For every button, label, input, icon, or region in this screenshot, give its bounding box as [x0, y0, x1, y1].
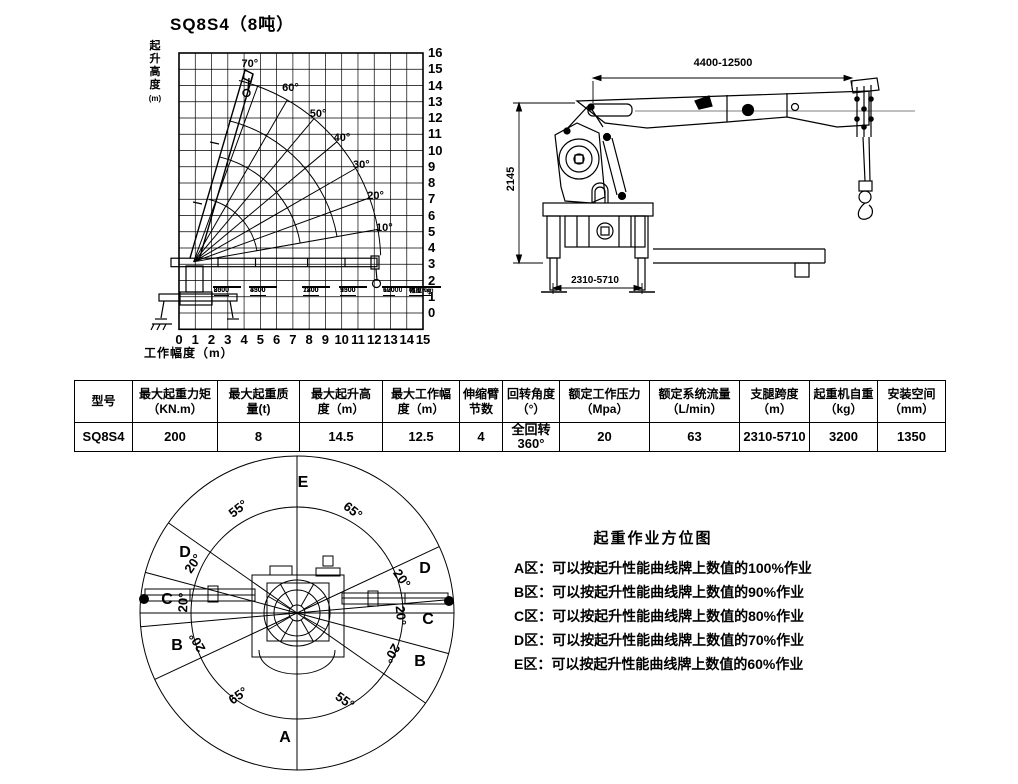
boom-angle-label: 60°	[276, 82, 304, 94]
zone-legend-item-e: E区：可以按起升性能曲线牌上数值的60%作业	[514, 654, 854, 674]
y-tick: 5	[428, 224, 435, 239]
spec-value-9: 2310-5710	[740, 423, 810, 452]
boom-angle-label: 40°	[328, 132, 356, 144]
load-chart-canvas	[150, 30, 465, 375]
y-tick: 4	[428, 240, 435, 255]
spec-col-header-5: 伸缩臂 节数	[460, 381, 503, 423]
spec-col-header-7: 额定工作压力 （Mpa）	[560, 381, 650, 423]
load-point-box: 13009500	[339, 286, 367, 288]
spec-value-2: 8	[218, 423, 300, 452]
y-tick: 6	[428, 208, 435, 223]
spec-value-6: 全回转 360°	[503, 423, 560, 452]
x-tick: 15	[414, 332, 432, 347]
boom-angle-label: 20°	[362, 190, 390, 202]
load-height-chart: 起升高度 (m) 工作幅度（m） 01234567891011121314150…	[150, 30, 465, 375]
boom	[577, 91, 869, 128]
spec-col-header-4: 最大工作幅 度（m）	[383, 381, 460, 423]
load-point-box: 18007200	[302, 286, 330, 288]
spec-col-header-10: 起重机自重 （kg）	[810, 381, 878, 423]
spec-value-5: 4	[460, 423, 503, 452]
boom-angle-label: 50°	[304, 108, 332, 120]
zone-letter-B: B	[167, 637, 187, 655]
zone-letter-C: C	[418, 611, 438, 629]
y-tick: 11	[428, 126, 442, 141]
boom-angle-label: 70°	[236, 58, 264, 70]
spec-sheet: SQ8S4（8吨）	[0, 0, 1018, 784]
load-point-box: 33004500	[249, 286, 277, 288]
zone-letter-D: D	[415, 560, 435, 578]
y-tick: 0	[428, 305, 435, 320]
load-box-legend: 荷重Kg幅度mm	[408, 286, 441, 288]
y-tick: 13	[428, 94, 442, 109]
sector-angle-label: 20°	[175, 588, 191, 617]
y-axis-label-text: 起升高度	[150, 40, 161, 91]
boom-angle-rays	[194, 86, 378, 262]
spec-value-0: SQ8S4	[75, 423, 133, 452]
spec-col-header-1: 最大起重力矩 （KN.m）	[133, 381, 218, 423]
load-point-box: 80002500	[213, 286, 241, 288]
boom-angle-label: 10°	[370, 222, 398, 234]
spec-table: 型号最大起重力矩 （KN.m）最大起重质 量(t)最大起升高 度（m）最大工作幅…	[74, 380, 946, 452]
y-axis-label: 起升高度 (m)	[148, 40, 162, 105]
spec-col-header-8: 额定系统流量 （L/min）	[650, 381, 740, 423]
boom-head	[851, 78, 879, 137]
zone-letter-C: C	[157, 591, 177, 609]
radius-legend-label: 幅度mm	[409, 287, 434, 295]
y-tick: 16	[428, 45, 442, 60]
dim-boom-length: 4400-12500	[653, 57, 793, 69]
y-axis-unit: (m)	[148, 92, 162, 105]
zone-letter-A: A	[275, 729, 295, 747]
boom-angle-label: 30°	[347, 159, 375, 171]
y-tick: 15	[428, 61, 442, 76]
crane-side-view: 4400-12500 2145 2310-5710	[495, 35, 935, 320]
y-tick: 14	[428, 78, 442, 93]
spec-col-header-3: 最大起升高 度（m）	[300, 381, 383, 423]
spec-col-header-9: 支腿跨度 （m）	[740, 381, 810, 423]
spec-value-10: 3200	[810, 423, 878, 452]
y-tick: 10	[428, 143, 442, 158]
zone-legend-item-a: A区：可以按起升性能曲线牌上数值的100%作业	[514, 558, 854, 578]
spec-col-header-2: 最大起重质 量(t)	[218, 381, 300, 423]
zone-legend-item-b: B区：可以按起升性能曲线牌上数值的90%作业	[514, 582, 854, 602]
spec-value-3: 14.5	[300, 423, 383, 452]
zone-diagram: EDCBADCB55°65°20°20°20°20°20°20°65°55°	[120, 450, 480, 784]
zone-legend-item-c: C区：可以按起升性能曲线牌上数值的80%作业	[514, 606, 854, 626]
zone-letter-E: E	[293, 474, 313, 492]
dim-height: 2145	[505, 149, 517, 209]
spec-col-header-11: 安装空间 （mm）	[878, 381, 946, 423]
zone-legend-title: 起重作业方位图	[508, 527, 798, 548]
radius-mm-value: 12000	[383, 287, 402, 295]
spec-value-4: 12.5	[383, 423, 460, 452]
zone-legend-item-d: D区：可以按起升性能曲线牌上数值的70%作业	[514, 630, 854, 650]
radius-mm-value: 9500	[340, 287, 356, 295]
radius-mm-value: 2500	[214, 287, 230, 295]
spec-value-7: 20	[560, 423, 650, 452]
y-tick: 12	[428, 110, 442, 125]
dim-outrigger-span: 2310-5710	[545, 275, 645, 286]
y-tick: 7	[428, 191, 435, 206]
radius-mm-value: 7200	[303, 287, 319, 295]
hook-block	[858, 137, 872, 219]
sector-angle-label: 20°	[392, 601, 409, 630]
radius-mm-value: 4500	[250, 287, 266, 295]
spec-col-header-6: 回转角度 （°）	[503, 381, 560, 423]
load-point-box: 60012000	[382, 286, 410, 288]
y-tick: 3	[428, 256, 435, 271]
spec-value-1: 200	[133, 423, 218, 452]
spec-table-wrap: 型号最大起重力矩 （KN.m）最大起重质 量(t)最大起升高 度（m）最大工作幅…	[74, 380, 946, 452]
spec-col-header-0: 型号	[75, 381, 133, 423]
y-tick: 8	[428, 175, 435, 190]
y-tick: 9	[428, 159, 435, 174]
spec-value-11: 1350	[878, 423, 946, 452]
dimension-lines	[513, 75, 852, 294]
zone-letter-B: B	[410, 653, 430, 671]
spec-value-8: 63	[650, 423, 740, 452]
